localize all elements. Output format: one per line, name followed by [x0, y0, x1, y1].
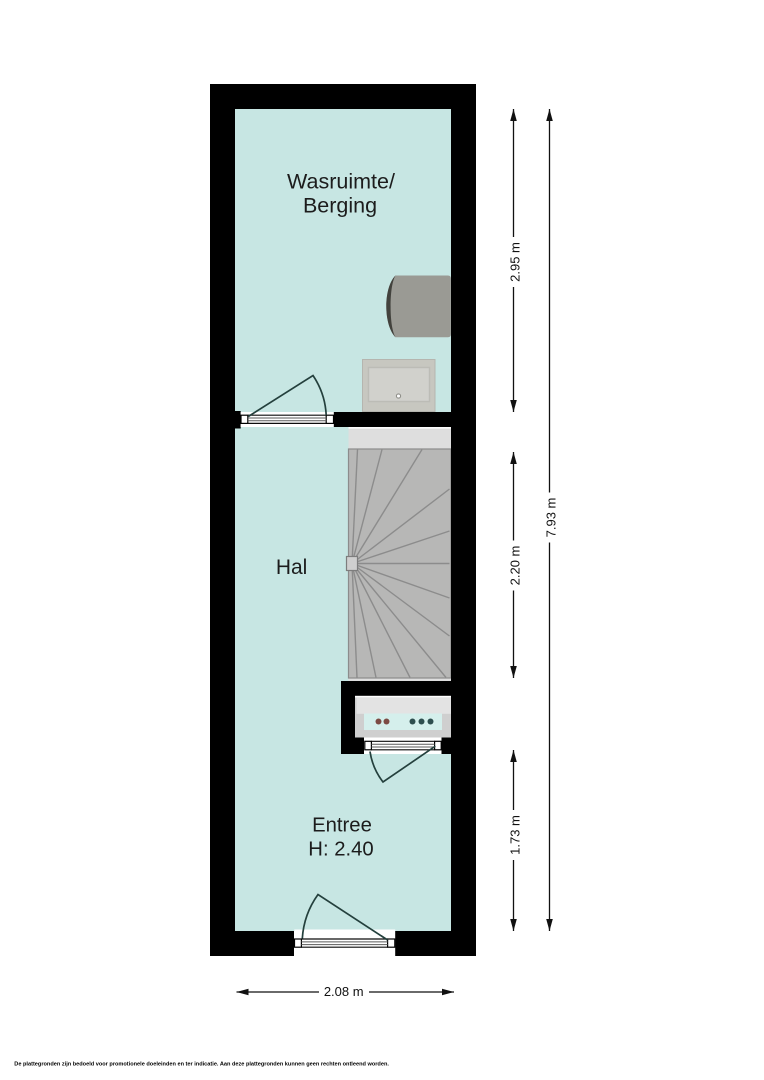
- svg-text:H: 2.40: H: 2.40: [308, 839, 373, 861]
- svg-text:2.08 m: 2.08 m: [324, 984, 364, 999]
- svg-text:Wasruimte/: Wasruimte/: [287, 169, 395, 193]
- svg-text:De plattegronden zijn bedoeld: De plattegronden zijn bedoeld voor promo…: [14, 1061, 389, 1067]
- svg-text:2.95 m: 2.95 m: [507, 242, 522, 282]
- svg-text:1.73 m: 1.73 m: [507, 815, 522, 855]
- svg-text:Entree: Entree: [312, 815, 372, 837]
- svg-text:Hal: Hal: [276, 556, 308, 579]
- svg-text:7.93 m: 7.93 m: [544, 498, 559, 538]
- svg-text:Berging: Berging: [303, 194, 377, 218]
- svg-text:2.20 m: 2.20 m: [507, 546, 522, 586]
